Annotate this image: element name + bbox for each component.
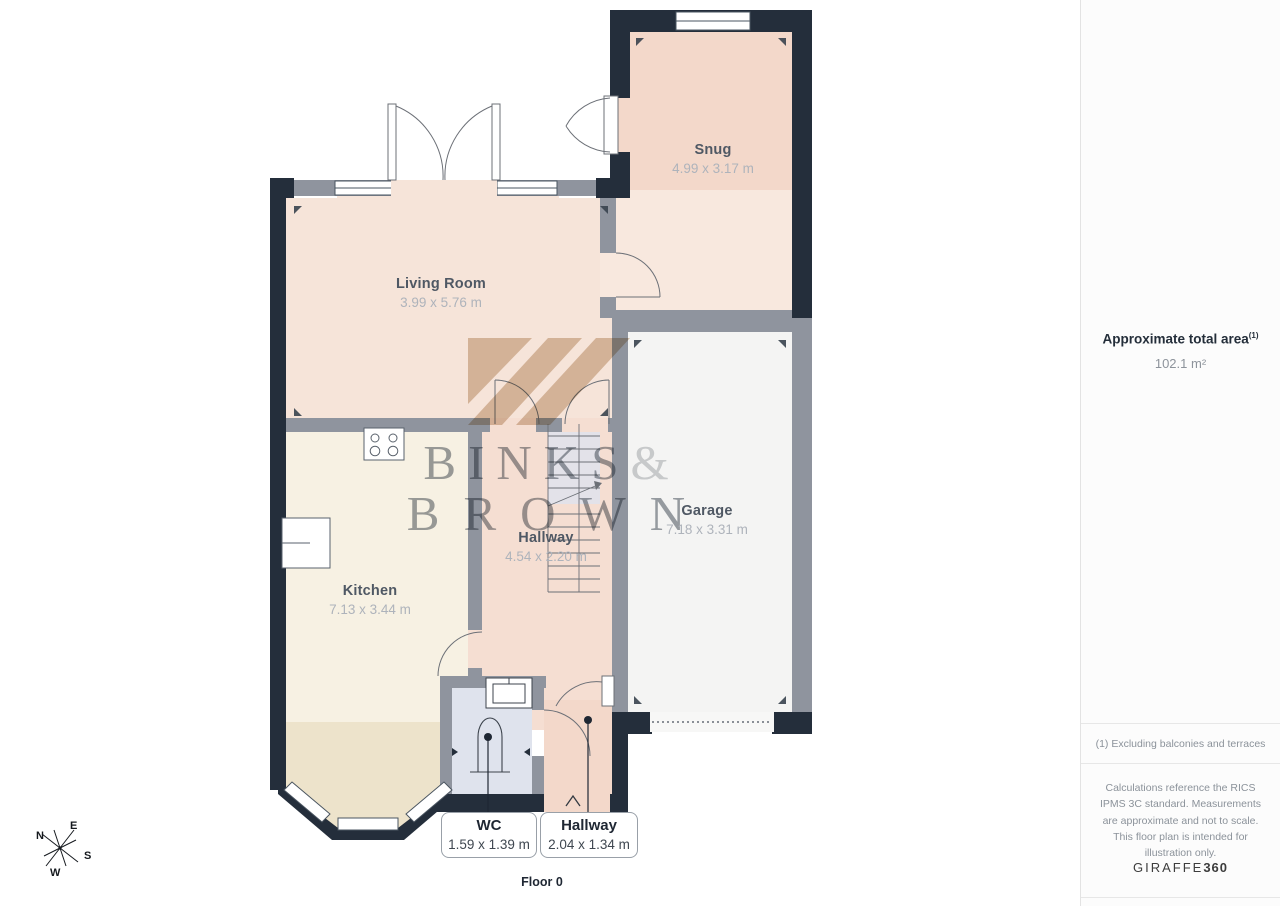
brand-logo: GIRAFFE360 [1081,860,1280,875]
callout-wc: WC 1.59 x 1.39 m [441,812,537,858]
total-area-title: Approximate total area(1) [1081,331,1280,347]
compass-south-label: S [84,850,91,862]
callout-dims: 2.04 x 1.34 m [548,837,630,852]
info-panel: Approximate total area(1) 102.1 m² (1) E… [1080,0,1280,906]
snug-floor [612,30,792,190]
callout-dims: 1.59 x 1.39 m [448,837,530,852]
callout-name: WC [477,818,502,835]
compass-west-label: W [50,867,60,879]
floorplan-page: BINKS& BROWN Snug 4.99 x 3.17 m Living R… [0,0,1280,906]
stove-icon [364,428,404,460]
total-area-value: 102.1 m² [1081,356,1280,371]
floor-plan-canvas [0,0,1080,906]
brand-suffix: 360 [1203,860,1228,875]
total-area-block: Approximate total area(1) 102.1 m² [1081,331,1280,371]
compass-east-label: E [70,820,77,832]
compass-north-label: N [36,830,44,842]
fireplace-icon [282,518,330,568]
disclaimer-text: Calculations reference the RICS IPMS 3C … [1081,780,1280,861]
footnote-text: (1) Excluding balconies and terraces [1081,723,1280,764]
footnote-marker: (1) [1249,331,1259,340]
callout-name: Hallway [561,818,617,835]
floor-label: Floor 0 [490,875,594,889]
panel-divider [1081,897,1280,898]
compass-star [12,814,108,894]
entrance-opening [544,794,610,812]
callout-hallway-entry: Hallway 2.04 x 1.34 m [540,812,638,858]
sink-icon [486,678,532,708]
entry-hallway-floor [544,700,616,794]
garage-floor [628,332,792,712]
snug-corridor-floor [616,190,792,318]
compass-icon: N E S W [12,814,108,894]
garage-door [650,712,774,732]
brand-name: GIRAFFE [1133,860,1203,875]
